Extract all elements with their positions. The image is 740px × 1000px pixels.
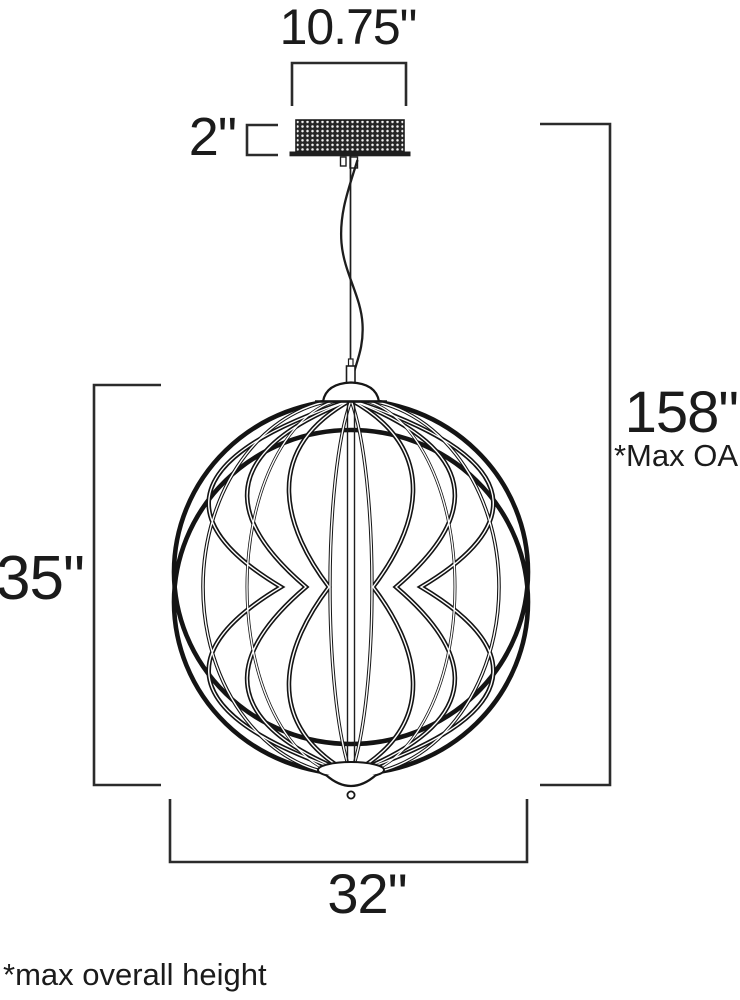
center-rod [348,402,355,770]
dimension-bracket-fixture-height [94,385,161,785]
top-finial [315,359,387,402]
power-cord [341,160,363,379]
canopy-width-label: 10.75" [248,2,448,52]
canopy-height-label: 2" [140,110,236,164]
dimension-bracket-canopy-height [247,125,278,155]
diagram-linework [0,0,740,1000]
dimension-bracket-max-height [540,124,610,785]
cage-center-marquise [330,400,372,774]
cable-gripper [341,157,347,166]
max-overall-note-label: *Max OA [608,440,738,471]
pendant-dimension-diagram: 10.75" 2" 158" *Max OA 35" 32" *max over… [0,0,740,1000]
fixture-height-label: 35" [0,548,82,610]
footnote-label: *max overall height [3,959,267,990]
bottom-finial [318,762,384,799]
fixture-width-label: 32" [267,866,467,922]
dimension-bracket-canopy-width [292,63,406,106]
max-overall-height-label: 158" [608,384,738,442]
dimension-bracket-fixture-width [170,799,527,862]
sphere-cage [174,399,528,775]
canopy-mesh [296,120,404,152]
canopy-base-plate [290,152,411,157]
